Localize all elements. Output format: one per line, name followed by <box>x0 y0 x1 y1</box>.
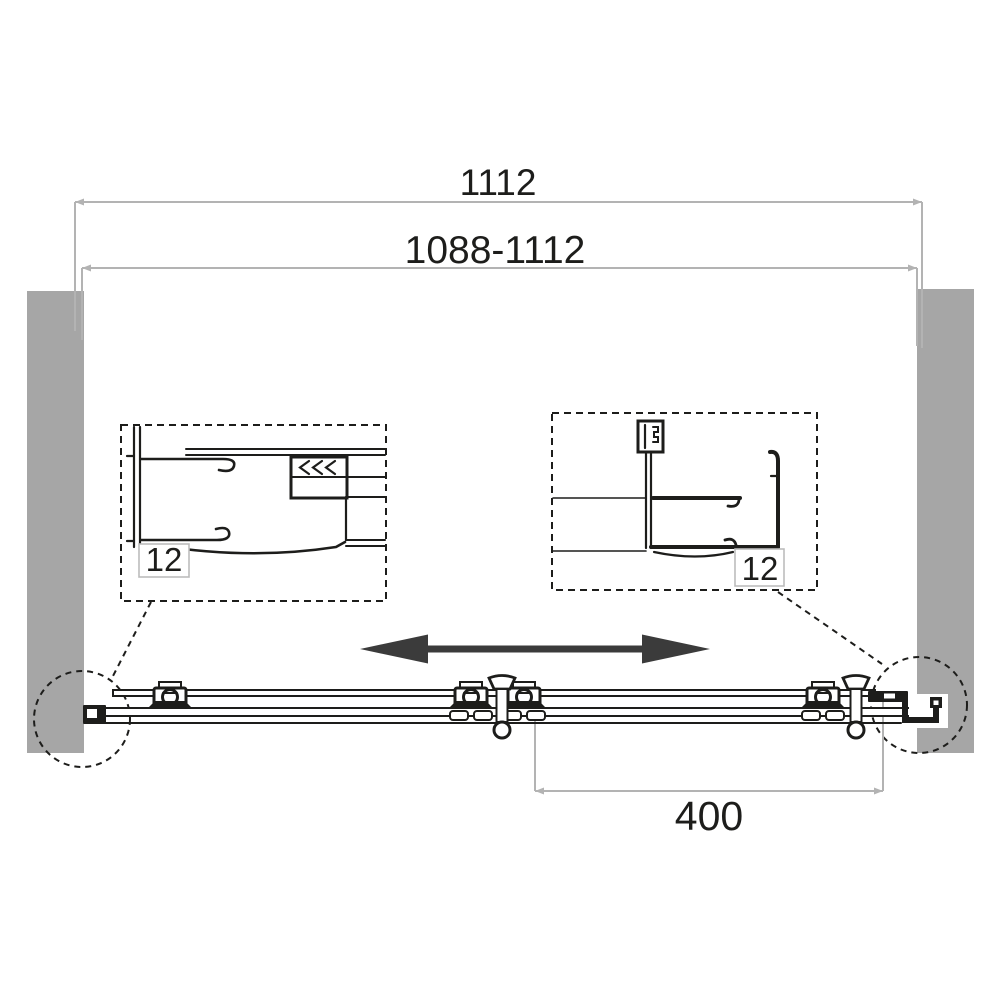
channel-bottom-arm <box>141 528 229 540</box>
wall-profile-section-right <box>553 421 778 557</box>
roller-base <box>502 701 546 708</box>
profile-end-bar <box>770 452 778 547</box>
dimension-arrow-left <box>82 265 91 272</box>
door-knob-right <box>843 676 869 739</box>
profile-lip-curve <box>654 552 733 557</box>
leader-line-left <box>113 602 151 676</box>
technical-drawing-canvas: 1112 1088-1112 <box>0 0 1000 1000</box>
cap-slot <box>884 694 895 699</box>
door-travel-value: 400 <box>675 793 743 839</box>
dimension-arrow-left <box>75 199 84 206</box>
arrow-head-left <box>360 635 428 664</box>
detail-box-right: 12 <box>552 413 817 590</box>
mount-pad <box>527 711 545 720</box>
dimension-arrow-right <box>908 265 917 272</box>
roller-base <box>801 701 845 708</box>
wall-left <box>27 291 84 753</box>
arrow-head-right <box>642 635 710 664</box>
roller-base <box>449 701 493 708</box>
adjustment-range-value: 1088-1112 <box>405 229 586 272</box>
dimension-arrow-right <box>913 199 922 206</box>
knob-cap <box>489 676 515 690</box>
knob-ball <box>848 722 864 738</box>
knob-ball <box>494 722 510 738</box>
arm-hook <box>728 500 739 506</box>
mount-pad <box>826 711 844 720</box>
leader-line-right <box>778 592 882 664</box>
arrow-shaft <box>424 646 644 653</box>
roller-carriage-1 <box>148 682 192 708</box>
clamp-slot <box>87 709 97 718</box>
mount-pad <box>474 711 492 720</box>
knob-stem <box>497 689 508 722</box>
mount-pad <box>450 711 468 720</box>
wall-profile-section-left <box>127 427 385 553</box>
detail-left-value: 12 <box>146 541 183 578</box>
wall-clamp-left <box>83 705 106 723</box>
mount-pad <box>802 711 820 720</box>
upper-guide-rail <box>113 690 875 696</box>
dimension-adjustment-range: 1088-1112 <box>82 229 917 346</box>
channel-top-arm <box>141 459 234 471</box>
overall-width-value: 1112 <box>460 162 537 203</box>
bracket-nub-slot <box>934 701 939 706</box>
arm-hook <box>725 539 736 545</box>
roller-base <box>148 701 192 708</box>
dimension-arrow-right <box>874 788 883 795</box>
door-track-assembly <box>83 676 948 739</box>
mount-clip <box>638 421 663 452</box>
knob-cap <box>843 676 869 690</box>
detail-box-left: 12 <box>121 425 386 601</box>
dimension-arrow-left <box>535 788 544 795</box>
detail-right-value: 12 <box>742 550 779 587</box>
slide-direction-arrow <box>360 635 710 664</box>
knob-stem <box>851 689 862 722</box>
wall-right <box>917 289 974 753</box>
